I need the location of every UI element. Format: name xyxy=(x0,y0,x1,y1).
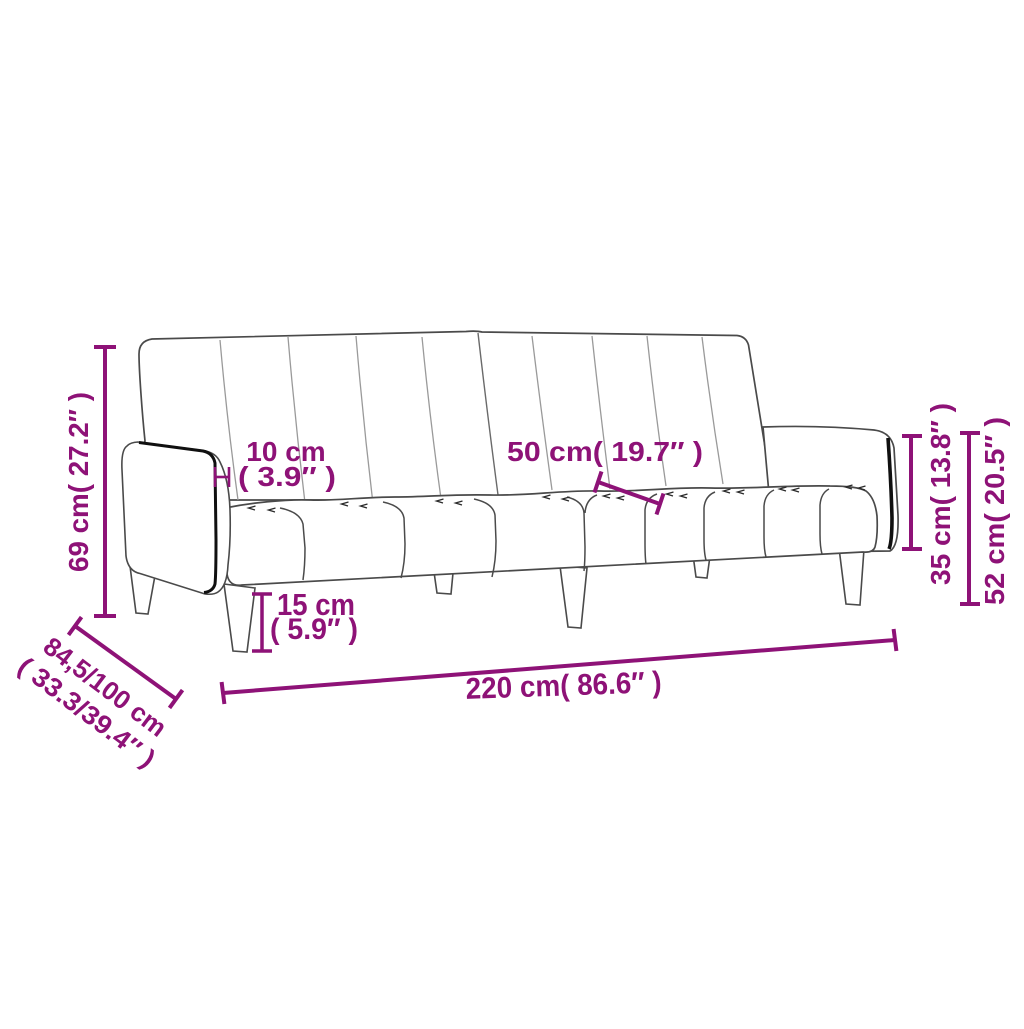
svg-text:220 cm( 86.6″ ): 220 cm( 86.6″ ) xyxy=(465,666,662,706)
svg-text:50 cm( 19.7″ ): 50 cm( 19.7″ ) xyxy=(507,436,703,467)
svg-text:52 cm( 20.5″ ): 52 cm( 20.5″ ) xyxy=(979,417,1010,605)
svg-text:69 cm( 27.2″ ): 69 cm( 27.2″ ) xyxy=(63,392,94,572)
svg-text:35 cm( 13.8″ ): 35 cm( 13.8″ ) xyxy=(925,403,956,585)
svg-text:( 5.9″ ): ( 5.9″ ) xyxy=(270,613,358,646)
svg-text:( 3.9″ ): ( 3.9″ ) xyxy=(238,461,336,492)
